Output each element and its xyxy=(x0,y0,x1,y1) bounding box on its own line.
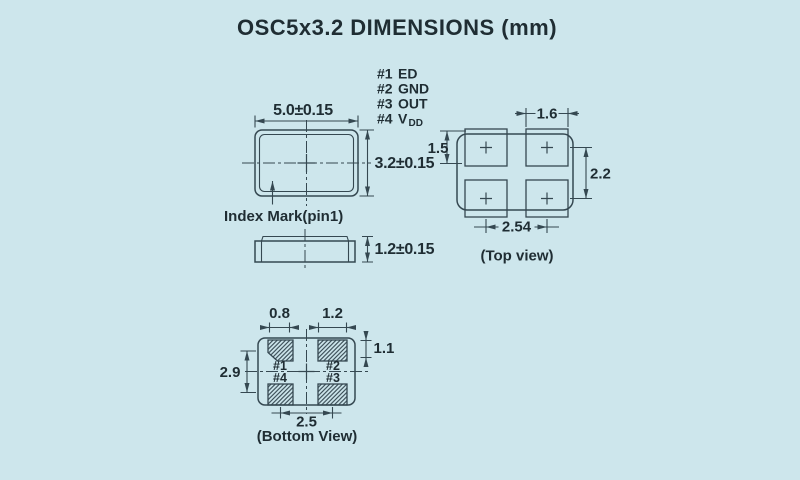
pin4-number: #4 xyxy=(377,111,393,127)
pin2-number: #2 xyxy=(377,81,393,97)
pad-height-dim-text-b: 1.1 xyxy=(374,340,395,357)
bottom-pad4-label: #4 xyxy=(273,371,287,385)
pin4-function: V xyxy=(398,111,408,127)
pin4-function-subscript: DD xyxy=(409,118,423,129)
dimension-drawing: OSC5x3.2 DIMENSIONS (mm) #1 ED #2 GND #3… xyxy=(0,0,800,480)
bottom-pad3-label: #3 xyxy=(326,371,340,385)
thickness-dim-text: 1.2±0.15 xyxy=(375,241,435,258)
height-dim-extension-lines xyxy=(360,130,375,196)
page-title: OSC5x3.2 DIMENSIONS (mm) xyxy=(237,15,557,40)
body-height-dim-text: 2.9 xyxy=(220,364,241,381)
pin1-number: #1 xyxy=(377,66,393,82)
bottom-view-caption: (Bottom View) xyxy=(257,428,358,445)
pad-width-dim-text: 1.6 xyxy=(537,106,558,123)
bottom-view: #1 #2 #4 #3 0.8 1.2 1.1 2.9 2.5 (Bottom … xyxy=(220,305,395,445)
top-view-body xyxy=(457,134,573,210)
top-view-pad-center-crosses xyxy=(480,142,553,205)
bottom-view-pad-2 xyxy=(318,340,347,361)
top-view: 1.6 1.5 2.2 2.54 (Top view) xyxy=(428,106,611,265)
pin-function-list: #1 ED #2 GND #3 OUT #4 V DD xyxy=(377,66,429,130)
pitch-v-dim-text: 2.2 xyxy=(590,166,611,183)
pad2-width-dim-text: 1.2 xyxy=(322,305,343,322)
height-dim-text: 3.2±0.15 xyxy=(375,155,435,172)
datasheet-page: OSC5x3.2 DIMENSIONS (mm) #1 ED #2 GND #3… xyxy=(0,0,800,480)
side-view: 1.2±0.15 xyxy=(255,229,435,270)
pin3-function: OUT xyxy=(398,96,428,112)
pin1-function: ED xyxy=(398,66,417,82)
pad-height-dim-text: 1.5 xyxy=(428,140,449,157)
pad1-width-dim-text: 0.8 xyxy=(269,305,290,322)
pin2-function: GND xyxy=(398,81,429,97)
front-view-center-cross xyxy=(298,154,316,172)
bottom-view-pad-3 xyxy=(318,384,347,405)
width-dim-text: 5.0±0.15 xyxy=(273,102,333,119)
bottom-view-center-cross xyxy=(299,364,315,380)
index-mark-label: Index Mark(pin1) xyxy=(224,208,343,225)
pitch-h-dim-text: 2.54 xyxy=(502,219,532,236)
bottom-view-pad-4 xyxy=(268,384,293,405)
bottom-view-pad-1-chamfered xyxy=(268,340,293,361)
top-view-caption: (Top view) xyxy=(480,248,553,265)
pin3-number: #3 xyxy=(377,96,393,112)
